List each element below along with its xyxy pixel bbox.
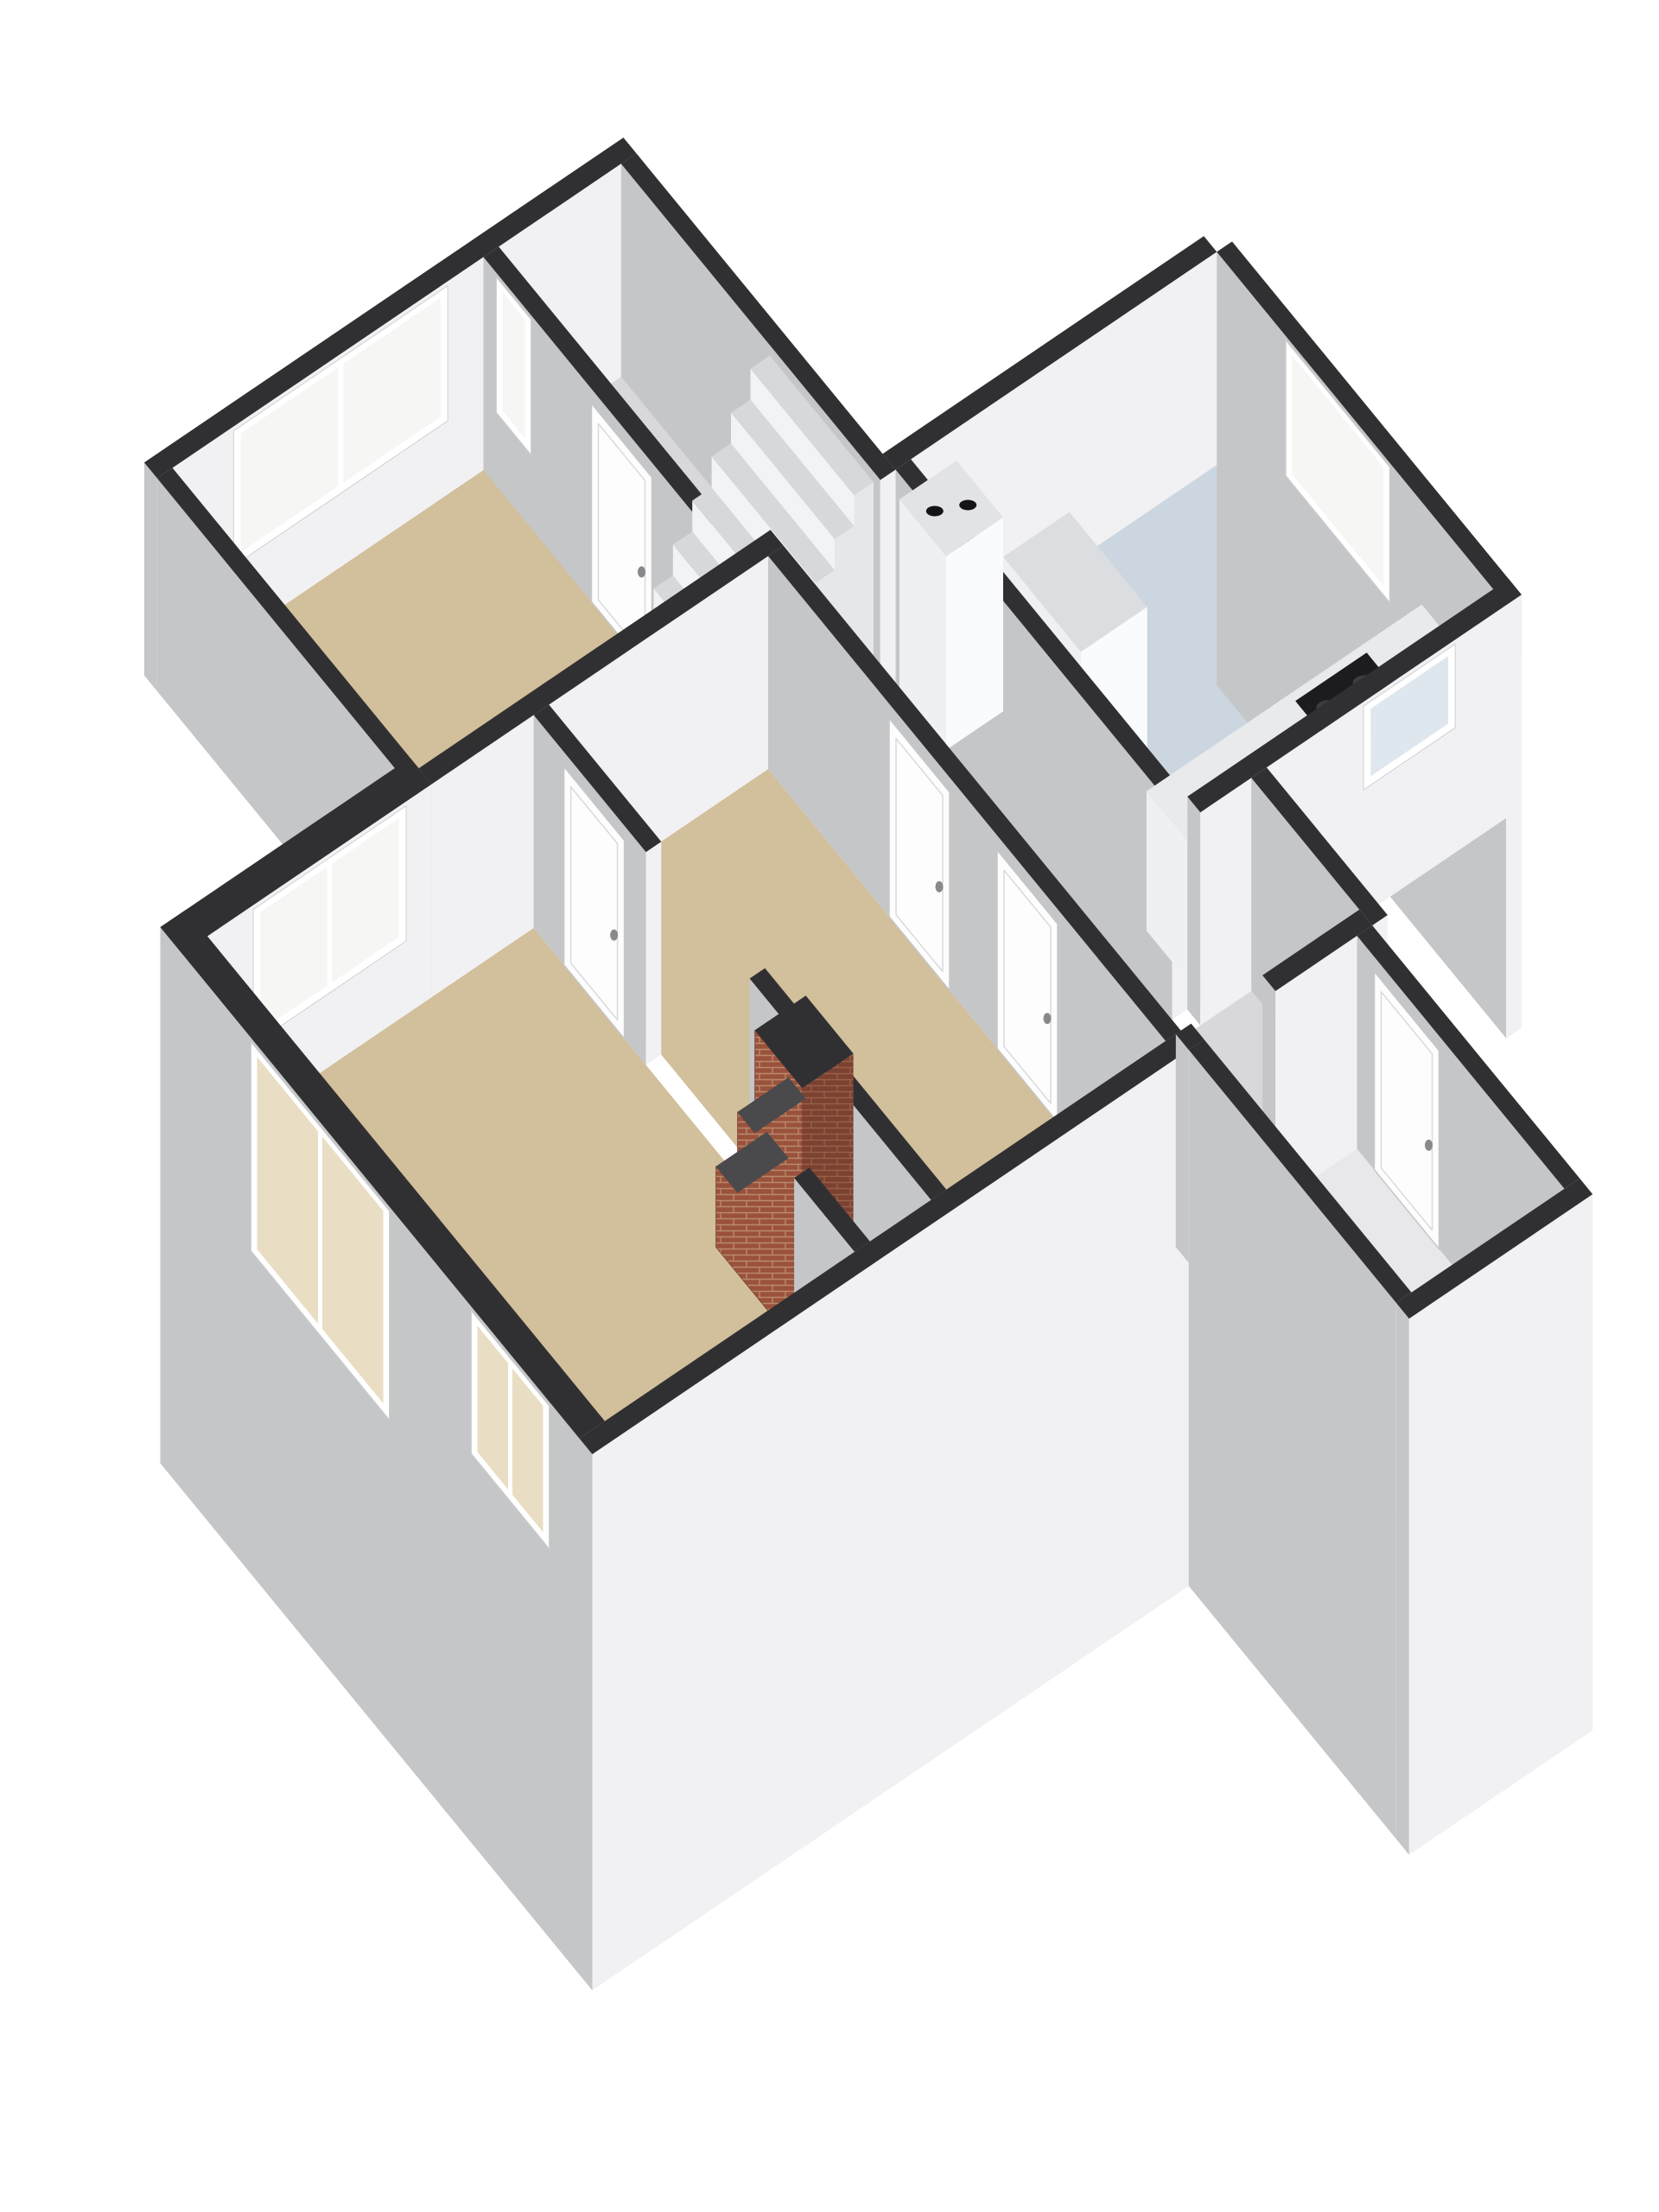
floorplan-svg <box>0 0 1659 2212</box>
floorplan-3d-view <box>0 0 1659 2212</box>
